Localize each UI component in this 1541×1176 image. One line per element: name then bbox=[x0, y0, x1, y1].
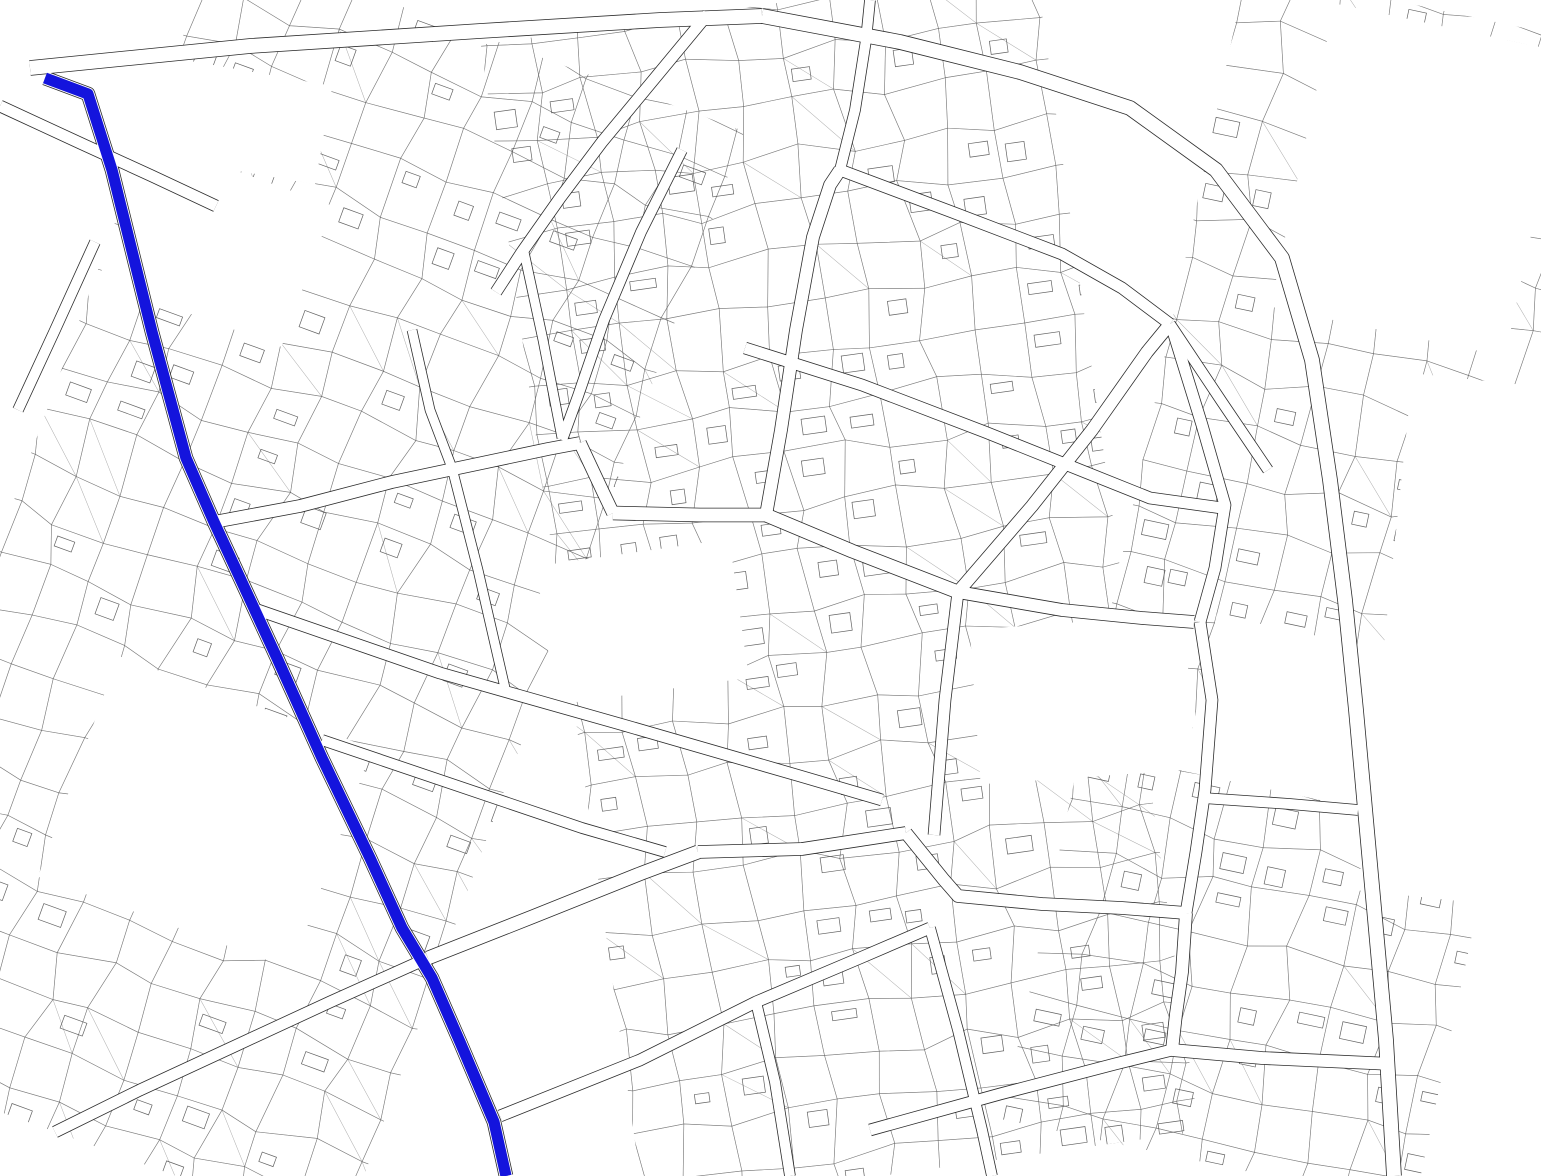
open-ground bbox=[536, 539, 749, 705]
city-map[interactable] bbox=[0, 0, 1541, 1176]
open-ground bbox=[970, 615, 1195, 785]
map-viewport[interactable] bbox=[0, 0, 1541, 1176]
